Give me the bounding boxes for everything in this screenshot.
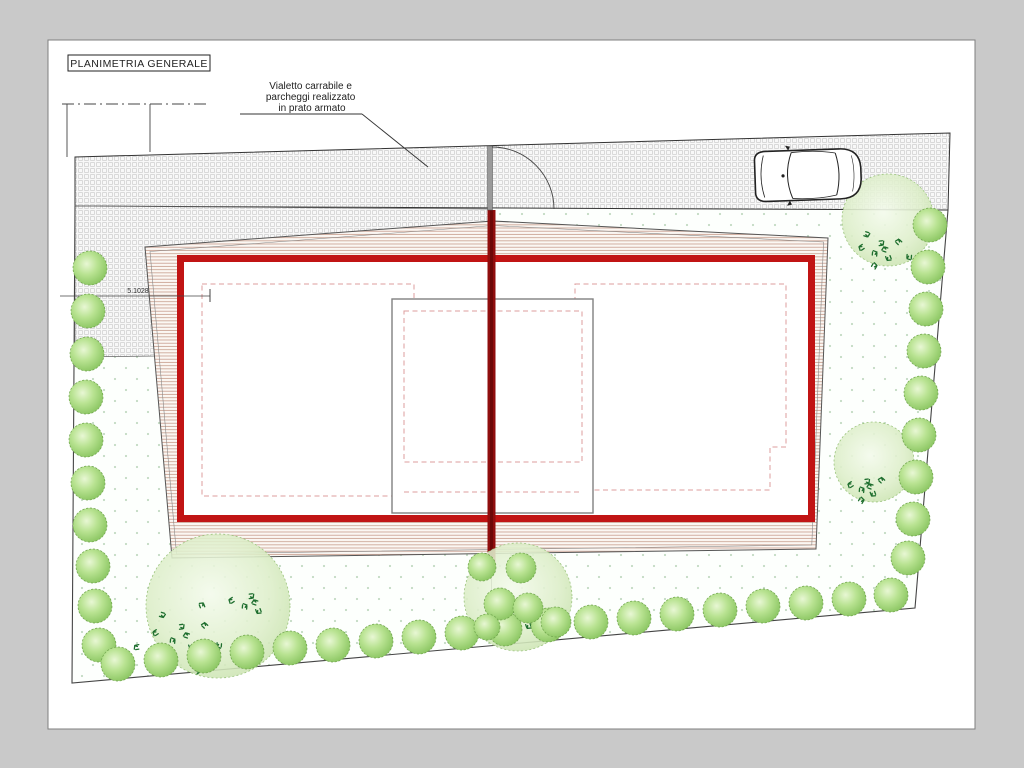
bush-icon — [144, 643, 178, 677]
bush-icon — [468, 553, 496, 581]
bush-icon — [506, 553, 536, 583]
bush-icon — [187, 639, 221, 673]
bush-icon — [574, 605, 608, 639]
bush-icon — [896, 502, 930, 536]
bush-icon — [316, 628, 350, 662]
bush-icon — [909, 292, 943, 326]
bush-icon — [513, 593, 543, 623]
bush-icon — [904, 376, 938, 410]
bush-icon — [891, 541, 925, 575]
bush-icon — [402, 620, 436, 654]
bush-icon — [230, 635, 264, 669]
site-plan-svg: 5.1028 PLANIMETRIA GENERALE Vialetto car… — [0, 0, 1024, 768]
bush-icon — [445, 616, 479, 650]
bush-icon — [73, 508, 107, 542]
bush-icon — [907, 334, 941, 368]
bush-icon — [911, 250, 945, 284]
bush-icon — [101, 647, 135, 681]
bush-icon — [273, 631, 307, 665]
page-title: PLANIMETRIA GENERALE — [70, 58, 208, 70]
annotation-text: Vialetto carrabile e parcheggi realizzat… — [266, 81, 358, 114]
bush-icon — [71, 466, 105, 500]
bush-icon — [913, 208, 947, 242]
bush-icon — [78, 589, 112, 623]
bush-icon — [874, 578, 908, 612]
bush-icon — [71, 294, 105, 328]
bush-icon — [73, 251, 107, 285]
bush-icon — [660, 597, 694, 631]
bush-icon — [703, 593, 737, 627]
bush-icon — [359, 624, 393, 658]
bush-icon — [474, 614, 500, 640]
bush-icon — [541, 607, 571, 637]
bush-icon — [617, 601, 651, 635]
bush-icon — [69, 380, 103, 414]
bush-icon — [902, 418, 936, 452]
dimension-label: 5.1028 — [127, 288, 149, 295]
bush-icon — [832, 582, 866, 616]
bush-icon — [69, 423, 103, 457]
bush-icon — [899, 460, 933, 494]
car-icon — [754, 143, 862, 207]
bush-icon — [76, 549, 110, 583]
bush-icon — [70, 337, 104, 371]
title-box: PLANIMETRIA GENERALE — [68, 55, 210, 71]
gate-post — [488, 146, 493, 210]
bush-icon — [789, 586, 823, 620]
bush-icon — [746, 589, 780, 623]
